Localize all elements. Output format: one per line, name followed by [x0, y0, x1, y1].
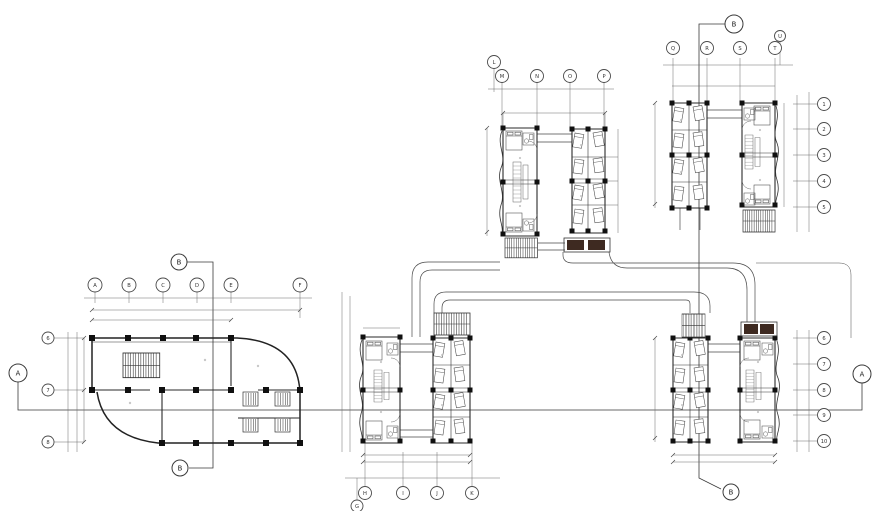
bed-icon	[454, 419, 465, 434]
bed-icon	[673, 159, 684, 174]
grid-bubble-5: 5	[818, 201, 831, 214]
grid-bubble-left-1: 6	[42, 332, 54, 344]
closet-icon	[513, 162, 528, 202]
grid-bubble-o: O	[564, 70, 577, 83]
bed-icon	[674, 342, 685, 357]
svg-text:7: 7	[46, 388, 49, 394]
bed-icon	[366, 421, 382, 440]
section-marker-b-top-right: B	[725, 15, 743, 33]
entrance-porch	[741, 322, 777, 336]
bed-icon	[573, 185, 584, 200]
grid-bubble-e: E	[224, 278, 238, 292]
bath-icon	[744, 193, 755, 205]
bed-icon	[454, 392, 465, 407]
grid-bubble-j: J	[431, 487, 444, 500]
bed-icon	[573, 209, 584, 224]
bed-icon	[674, 420, 685, 435]
grid-bubble-a: A	[88, 278, 102, 292]
section-marker-b-top-left: B	[171, 254, 187, 270]
svg-text:G: G	[355, 504, 359, 510]
bed-icon	[674, 394, 685, 409]
bath-icon	[762, 426, 773, 438]
section-marker-b-bottom-left: B	[172, 460, 188, 476]
bed-icon	[593, 183, 604, 198]
svg-text:8: 8	[46, 440, 49, 446]
block5-plan	[671, 314, 780, 444]
bath-icon	[387, 343, 398, 355]
svg-text:M: M	[500, 74, 504, 80]
grid-bubble-2: 2	[818, 123, 831, 136]
svg-text:S: S	[738, 46, 741, 52]
grid-bubble-g: G	[351, 500, 363, 511]
bed-icon	[693, 132, 704, 147]
svg-text:P: P	[602, 74, 605, 80]
bed-icon	[754, 185, 770, 204]
bed-icon	[693, 185, 704, 200]
svg-text:3: 3	[822, 153, 825, 159]
closet-icon	[374, 370, 389, 402]
svg-text:A: A	[860, 370, 865, 378]
grid-bubble-n: N	[531, 70, 544, 83]
floor-plan-drawing: A B C D E F 6 7 8 L M N O P Q R S T U 1 …	[0, 0, 890, 511]
grid-bubble-c: C	[156, 278, 170, 292]
block2-plan	[500, 126, 610, 258]
bed-icon	[434, 420, 445, 435]
grid-bubble-left-3: 8	[42, 436, 54, 448]
grid-bubble-k: K	[466, 487, 479, 500]
svg-text:B: B	[729, 488, 734, 496]
bed-icon	[673, 133, 684, 148]
grid-bubble-9: 9	[818, 409, 831, 422]
bed-icon	[593, 131, 604, 146]
svg-text:8: 8	[822, 388, 825, 394]
entrance-porch	[564, 238, 610, 252]
grid-bubble-d: D	[190, 278, 204, 292]
section-lines	[18, 24, 862, 489]
bed-icon	[506, 131, 522, 150]
svg-text:10: 10	[821, 439, 828, 445]
grid-bubble-7: 7	[818, 358, 831, 371]
grid-bubble-h: H	[359, 487, 372, 500]
bed-icon	[454, 340, 465, 355]
svg-text:N: N	[535, 74, 539, 80]
svg-text:B: B	[732, 20, 737, 28]
bed-icon	[454, 367, 465, 382]
table-icon	[275, 418, 290, 432]
svg-text:H: H	[363, 491, 367, 497]
svg-text:F: F	[299, 283, 302, 289]
closet-icon	[746, 370, 761, 402]
bed-icon	[366, 341, 382, 360]
svg-text:1: 1	[822, 102, 825, 108]
stair-icon	[434, 313, 470, 335]
floor-plan-viewport: A B C D E F 6 7 8 L M N O P Q R S T U 1 …	[0, 0, 890, 511]
grid-bubble-6: 6	[818, 332, 831, 345]
bed-icon	[434, 394, 445, 409]
svg-text:E: E	[229, 283, 232, 289]
grid-bubble-left-2: 7	[42, 384, 54, 396]
bed-icon	[573, 133, 584, 148]
bed-icon	[573, 159, 584, 174]
bed-icon	[694, 367, 705, 382]
grid-bubble-8: 8	[818, 384, 831, 397]
svg-text:Q: Q	[671, 46, 675, 52]
grid-bubble-q: Q	[667, 42, 680, 55]
grid-bubble-t: T	[769, 42, 782, 55]
grid-bubble-3: 3	[818, 149, 831, 162]
bed-icon	[673, 107, 684, 122]
block3-plan	[670, 101, 779, 233]
svg-text:R: R	[705, 46, 709, 52]
svg-text:6: 6	[822, 336, 825, 342]
bed-icon	[693, 105, 704, 120]
grid-bubble-l: L	[488, 56, 501, 69]
grid-bubble-b: B	[122, 278, 136, 292]
stair-icon	[743, 210, 775, 232]
closet-icon	[745, 135, 760, 169]
bath-icon	[762, 343, 773, 355]
bed-icon	[434, 368, 445, 383]
bath-icon	[387, 426, 398, 438]
svg-text:L: L	[493, 60, 496, 66]
svg-text:B: B	[127, 283, 131, 289]
grid-bubble-m: M	[496, 70, 509, 83]
svg-text:C: C	[161, 283, 165, 289]
grid-bubble-4: 4	[818, 175, 831, 188]
bed-icon	[506, 213, 522, 232]
grid-bubble-u: U	[775, 31, 786, 42]
stair-icon	[123, 353, 160, 378]
bath-icon	[744, 108, 755, 120]
stair-icon	[505, 238, 537, 258]
table-icon	[243, 418, 258, 432]
section-marker-a-left: A	[9, 364, 27, 382]
bed-icon	[593, 158, 604, 173]
svg-text:5: 5	[822, 205, 825, 211]
bed-icon	[673, 186, 684, 201]
table-icon	[275, 392, 290, 406]
svg-text:O: O	[568, 74, 572, 80]
grid-bubble-i: I	[397, 487, 410, 500]
bed-icon	[674, 368, 685, 383]
svg-text:7: 7	[822, 362, 825, 368]
bath-icon	[523, 133, 534, 145]
grid-bubble-s: S	[734, 42, 747, 55]
grid-bubble-f: F	[293, 278, 307, 292]
svg-text:B: B	[178, 464, 183, 472]
grid-bubble-1: 1	[818, 98, 831, 111]
grid-bubbles: A B C D E F 6 7 8 L M N O P Q R S T U 1 …	[42, 31, 831, 511]
bed-icon	[744, 420, 760, 439]
svg-text:9: 9	[822, 413, 825, 419]
bed-icon	[693, 157, 704, 172]
svg-text:A: A	[93, 283, 97, 289]
svg-text:U: U	[778, 34, 782, 40]
svg-text:B: B	[177, 258, 182, 266]
stair-icon	[682, 314, 705, 337]
section-marker-a-right: A	[853, 365, 871, 383]
svg-text:D: D	[195, 283, 199, 289]
table-icon	[243, 392, 258, 406]
bed-icon	[694, 392, 705, 407]
bath-icon	[523, 219, 534, 231]
block1-plan	[89, 335, 303, 446]
bed-icon	[434, 342, 445, 357]
svg-text:2: 2	[822, 127, 825, 133]
bed-icon	[694, 419, 705, 434]
bed-icon	[593, 208, 604, 223]
svg-text:A: A	[16, 369, 21, 377]
grid-bubble-p: P	[598, 70, 611, 83]
block4-plan	[360, 313, 473, 444]
bed-icon	[754, 106, 770, 125]
section-marker-b-bottom-right: B	[723, 484, 739, 500]
bed-icon	[694, 340, 705, 355]
svg-text:K: K	[470, 491, 474, 497]
grid-bubble-10: 10	[818, 435, 831, 448]
grid-bubble-r: R	[701, 42, 714, 55]
svg-text:6: 6	[46, 336, 49, 342]
bed-icon	[744, 341, 760, 360]
